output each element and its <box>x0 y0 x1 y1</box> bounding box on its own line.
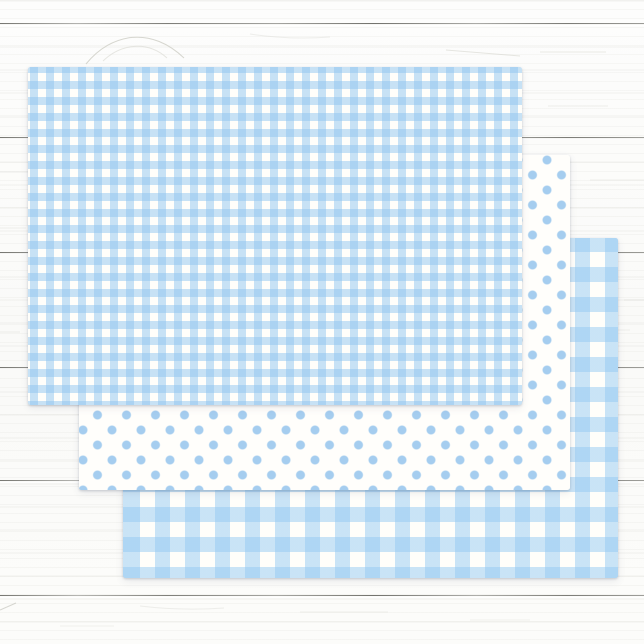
sheet-gingham-small <box>28 67 522 405</box>
product-photo-stage <box>0 0 644 644</box>
